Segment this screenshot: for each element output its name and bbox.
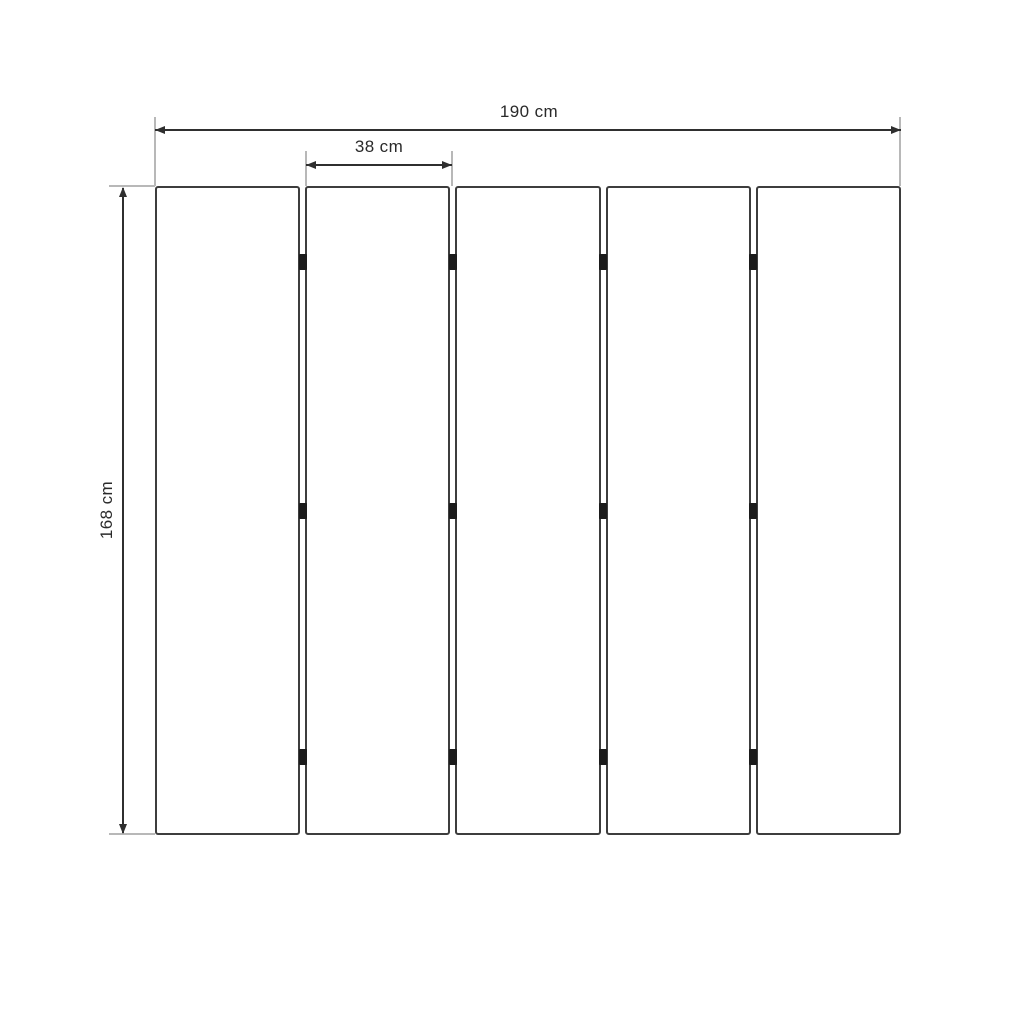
arrowhead-right-icon [891,126,901,134]
panel-1 [155,186,300,835]
panel-group [155,186,901,835]
panel-2 [305,186,450,835]
hinge-mark [299,254,307,270]
hinge-mark [599,749,607,765]
arrowhead-up-icon [119,187,127,197]
dimension-line-panel-width [306,164,452,166]
extension-line [109,185,155,187]
panel-5 [756,186,901,835]
panel-width-label: 38 cm [355,137,403,157]
arrowhead-down-icon [119,824,127,834]
hinge-mark [449,749,457,765]
hinge-mark [599,254,607,270]
dimension-line-total-width [155,129,901,131]
extension-line [109,833,155,835]
hinge-mark [449,503,457,519]
diagram-canvas: 190 cm 38 cm 168 cm [0,0,1024,1024]
hinge-mark [749,503,757,519]
hinge-mark [449,254,457,270]
hinge-mark [599,503,607,519]
hinge-mark [299,503,307,519]
dimension-line-panel-height [122,188,124,833]
hinge-mark [749,749,757,765]
panel-3 [455,186,600,835]
arrowhead-left-icon [306,161,316,169]
hinge-mark [749,254,757,270]
arrowhead-right-icon [442,161,452,169]
panel-height-label: 168 cm [97,481,117,539]
total-width-label: 190 cm [500,102,558,122]
panel-4 [606,186,751,835]
arrowhead-left-icon [155,126,165,134]
hinge-mark [299,749,307,765]
